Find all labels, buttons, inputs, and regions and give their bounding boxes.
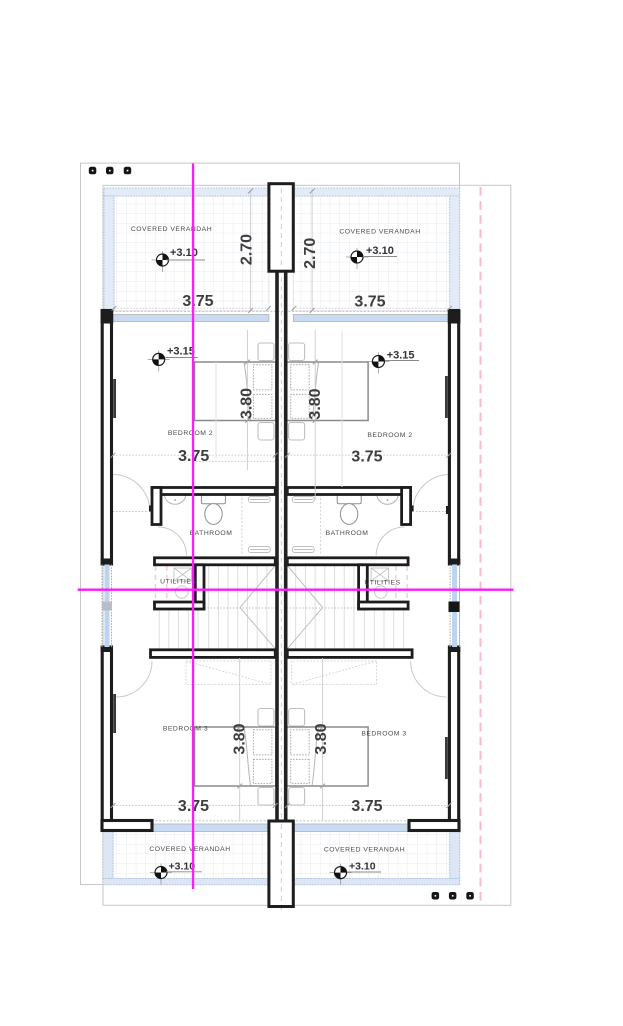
svg-text:COVERED VERANDAH: COVERED VERANDAH xyxy=(339,229,420,236)
svg-text:BEDROOM 3: BEDROOM 3 xyxy=(163,726,208,733)
svg-text:3.80: 3.80 xyxy=(307,388,324,419)
svg-text:COVERED VERANDAH: COVERED VERANDAH xyxy=(149,846,230,853)
svg-text:BEDROOM 2: BEDROOM 2 xyxy=(168,430,213,437)
svg-text:3.80: 3.80 xyxy=(313,723,330,754)
svg-text:3.75: 3.75 xyxy=(354,294,385,311)
svg-text:BATHROOM: BATHROOM xyxy=(326,530,369,537)
svg-text:UTILITIES: UTILITIES xyxy=(364,580,400,587)
svg-text:3.75: 3.75 xyxy=(182,293,213,310)
svg-text:+3.15: +3.15 xyxy=(167,346,195,358)
svg-text:+3.10: +3.10 xyxy=(366,245,394,257)
svg-text:3.75: 3.75 xyxy=(351,449,382,466)
svg-text:BATHROOM: BATHROOM xyxy=(190,530,233,537)
svg-text:3.75: 3.75 xyxy=(351,798,382,815)
svg-text:3.80: 3.80 xyxy=(239,388,256,419)
svg-text:COVERED VERANDAH: COVERED VERANDAH xyxy=(131,226,212,233)
svg-text:+3.10: +3.10 xyxy=(349,861,376,873)
svg-text:COVERED VERANDAH: COVERED VERANDAH xyxy=(324,847,405,854)
svg-text:BEDROOM 2: BEDROOM 2 xyxy=(367,432,412,439)
svg-text:2.70: 2.70 xyxy=(302,238,319,269)
svg-text:3.80: 3.80 xyxy=(232,723,249,754)
svg-text:+3.10: +3.10 xyxy=(169,861,196,873)
svg-text:2.70: 2.70 xyxy=(239,234,256,265)
svg-text:UTILITIES: UTILITIES xyxy=(160,579,196,586)
svg-text:+3.15: +3.15 xyxy=(387,350,415,362)
svg-text:BEDROOM 3: BEDROOM 3 xyxy=(361,731,406,738)
